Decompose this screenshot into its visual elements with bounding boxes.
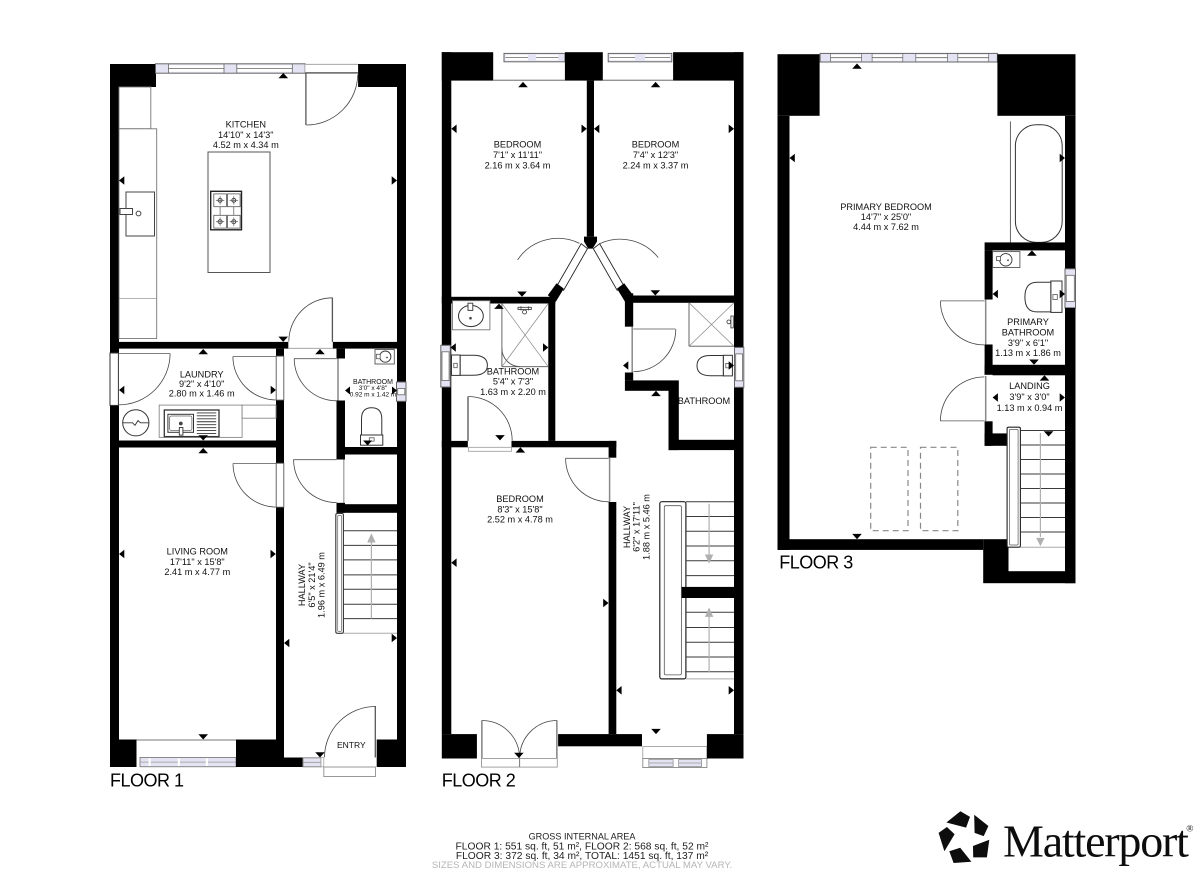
svg-text:4.44 m x 7.62 m: 4.44 m x 7.62 m [853,222,919,232]
svg-text:PRIMARY: PRIMARY [1007,317,1049,327]
svg-text:®: ® [1186,824,1193,835]
svg-text:LAUNDRY: LAUNDRY [180,370,224,380]
svg-text:7'4" x 12'3": 7'4" x 12'3" [633,150,678,160]
svg-text:3'9" x 6'1": 3'9" x 6'1" [1008,338,1048,348]
svg-text:3'9" x 3'0": 3'9" x 3'0" [1009,392,1049,402]
svg-text:1.13 m x 1.86 m: 1.13 m x 1.86 m [995,348,1061,358]
svg-text:BATHROOM: BATHROOM [1002,328,1054,338]
svg-text:BATHROOM: BATHROOM [487,366,539,376]
svg-text:HALLWAY: HALLWAY [622,506,632,548]
svg-text:9'2" x 4'10": 9'2" x 4'10" [179,379,224,389]
svg-text:4.52 m x 4.34 m: 4.52 m x 4.34 m [213,140,279,150]
svg-text:GROSS INTERNAL AREA: GROSS INTERNAL AREA [529,832,637,842]
svg-text:LIVING ROOM: LIVING ROOM [167,547,228,557]
svg-text:7'1" x 11'11": 7'1" x 11'11" [493,150,542,160]
svg-text:14'7" x 25'0": 14'7" x 25'0" [861,212,911,222]
svg-text:PRIMARY BEDROOM: PRIMARY BEDROOM [840,202,932,212]
svg-text:2.16 m x 3.64 m: 2.16 m x 3.64 m [485,160,551,170]
svg-text:17'11" x 15'8": 17'11" x 15'8" [170,557,225,567]
svg-text:BEDROOM: BEDROOM [496,494,543,504]
svg-text:SIZES AND DIMENSIONS ARE APPRO: SIZES AND DIMENSIONS ARE APPROXIMATE, AC… [432,860,732,871]
svg-text:1.13 m x 0.94 m: 1.13 m x 0.94 m [997,403,1063,413]
svg-text:HALLWAY: HALLWAY [297,564,307,606]
svg-text:2.80 m x 1.46 m: 2.80 m x 1.46 m [169,389,235,399]
svg-text:Matterport: Matterport [1003,816,1189,867]
svg-text:1.96 m x 6.49 m: 1.96 m x 6.49 m [317,552,327,618]
svg-text:1.63 m x 2.20 m: 1.63 m x 2.20 m [480,387,546,397]
svg-text:BATHROOM: BATHROOM [678,396,730,406]
svg-text:14'10" x 14'3": 14'10" x 14'3" [218,130,274,140]
svg-text:KITCHEN: KITCHEN [226,120,266,130]
svg-text:ENTRY: ENTRY [337,740,366,750]
svg-text:8'3" x 15'8": 8'3" x 15'8" [497,504,542,514]
svg-text:FLOOR 2: FLOOR 2 [442,770,516,790]
svg-text:1.88 m x 5.46 m: 1.88 m x 5.46 m [641,494,651,560]
svg-text:FLOOR 3: FLOOR 3 [779,552,853,572]
svg-text:6'5" x 21'4": 6'5" x 21'4" [307,562,317,607]
svg-text:2.41 m x 4.77 m: 2.41 m x 4.77 m [164,567,230,577]
svg-text:LANDING: LANDING [1009,381,1050,391]
svg-text:FLOOR 1: FLOOR 1 [110,770,184,790]
svg-text:2.52 m x 4.78 m: 2.52 m x 4.78 m [487,515,553,525]
svg-text:0.92 m x 1.42 m: 0.92 m x 1.42 m [350,392,397,399]
svg-text:6'2" x 17'11": 6'2" x 17'11" [632,502,642,552]
svg-text:BEDROOM: BEDROOM [494,140,541,150]
svg-text:2.24 m x 3.37 m: 2.24 m x 3.37 m [623,160,689,170]
svg-text:BEDROOM: BEDROOM [632,140,679,150]
svg-text:5'4" x 7'3": 5'4" x 7'3" [493,377,533,387]
